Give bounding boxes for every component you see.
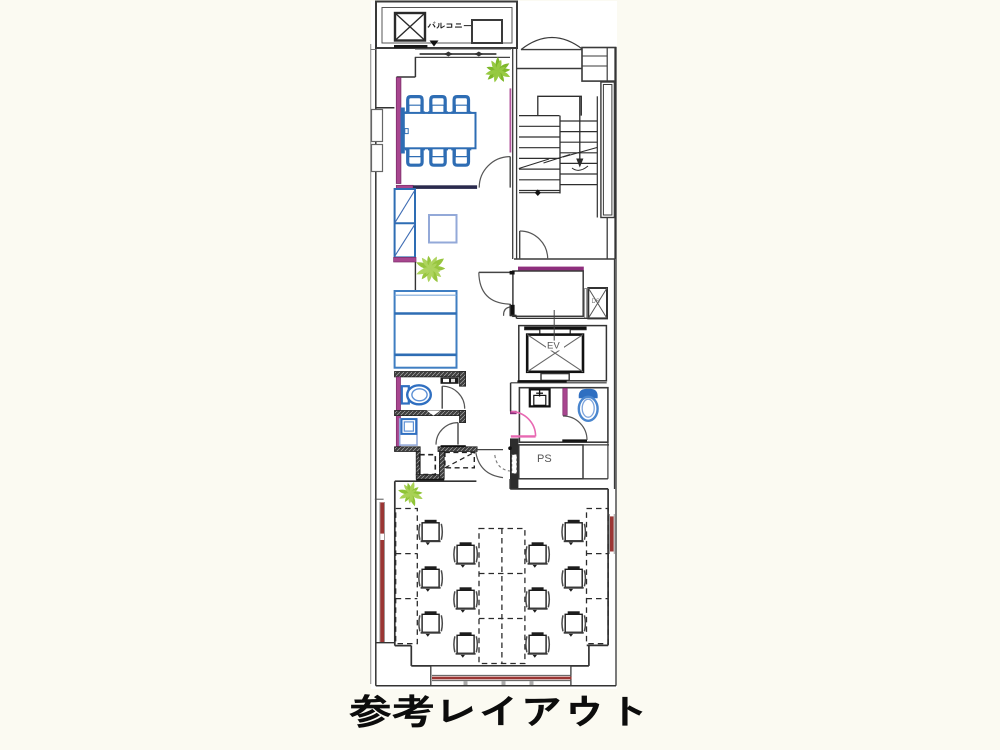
svg-text:PS: PS	[537, 453, 552, 465]
svg-text:DS: DS	[592, 299, 600, 305]
svg-text:EV: EV	[547, 341, 560, 352]
